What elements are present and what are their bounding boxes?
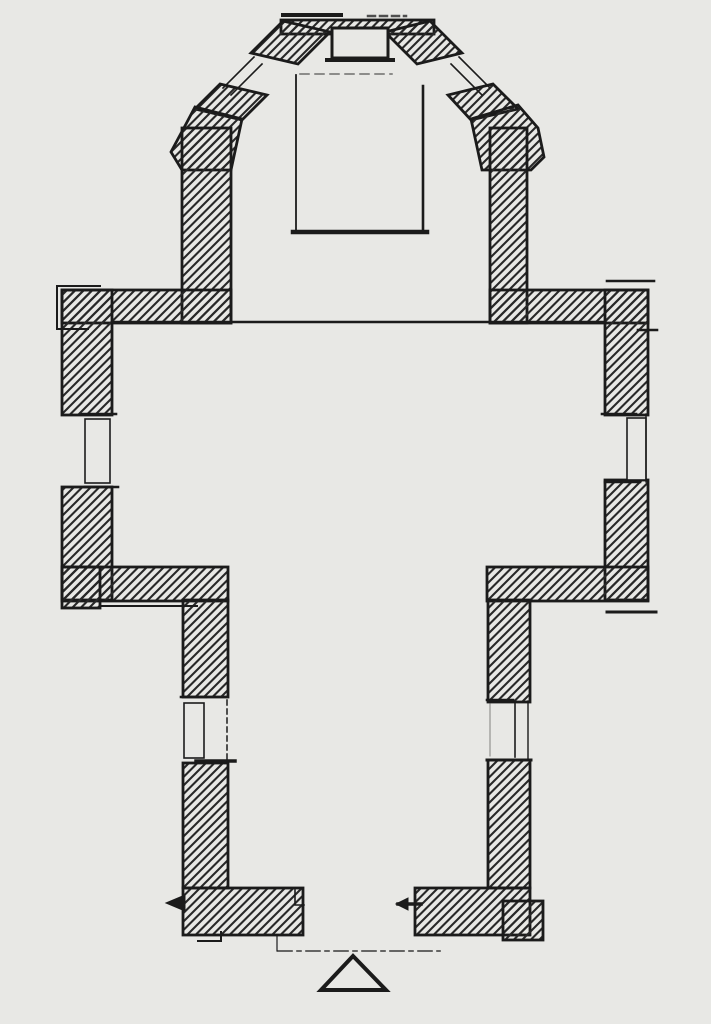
nave-window-west-frame xyxy=(184,703,204,758)
transept-window-east-frame xyxy=(627,418,646,480)
transept-south-wall-right xyxy=(487,567,648,601)
floor-plan-figure xyxy=(0,0,711,1024)
facade-wall-left xyxy=(183,888,303,935)
nave-west-wall-upper xyxy=(183,600,228,697)
transept-east-wall-upper xyxy=(605,290,648,415)
nave-east-wall-upper xyxy=(488,600,530,702)
floor-plan-svg xyxy=(0,0,711,1024)
transept-south-foot-left xyxy=(62,567,100,608)
transept-west-wall-upper xyxy=(62,290,112,415)
nave-west-wall-lower xyxy=(183,763,228,888)
apse-altar-niche xyxy=(332,28,388,58)
scanned-plan-page xyxy=(0,0,711,1024)
facade-foot-right xyxy=(503,901,543,940)
nave-east-wall-lower xyxy=(488,760,530,888)
transept-window-west-frame xyxy=(85,419,110,483)
